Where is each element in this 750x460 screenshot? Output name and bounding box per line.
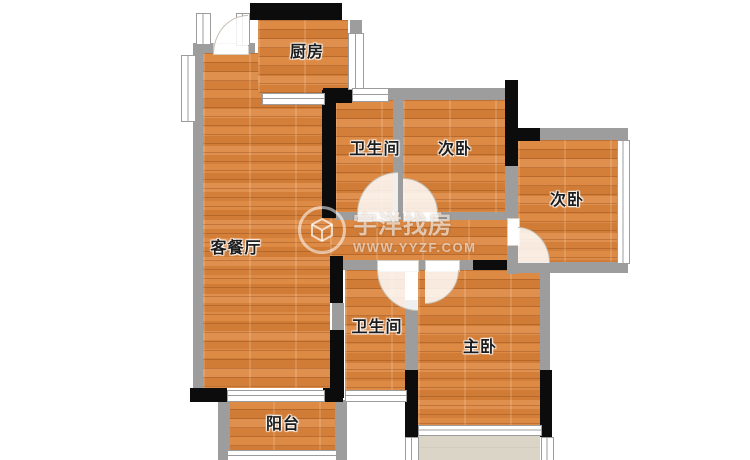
room-label-bathroom-lower: 卫生间	[332, 313, 422, 337]
wall-segment	[507, 244, 518, 274]
wall-segment	[387, 88, 507, 100]
wall-segment	[518, 262, 628, 273]
window	[405, 437, 419, 460]
window	[262, 93, 325, 105]
wall-segment	[335, 212, 357, 220]
wall-segment	[343, 260, 377, 270]
wall-segment	[458, 260, 473, 270]
door-opening	[357, 212, 399, 222]
floorplan-canvas: 厨房 卫生间 次卧 次卧 客餐厅 卫生间 主卧 阳台 宇洋找房 WWW.YYZF…	[0, 0, 750, 460]
floor-south-balcony	[418, 433, 540, 460]
door-arc-entry	[213, 15, 248, 54]
door-opening	[403, 212, 439, 222]
wall-segment	[540, 273, 550, 370]
room-label-bedroom-right: 次卧	[522, 186, 612, 210]
room-label-bathroom-top: 卫生间	[330, 135, 420, 159]
window	[617, 140, 630, 264]
room-label-kitchen: 厨房	[262, 38, 352, 62]
window	[541, 437, 554, 460]
window	[352, 88, 389, 102]
wall-segment	[190, 388, 227, 402]
wall-segment	[437, 212, 507, 220]
window	[345, 390, 407, 402]
floor-hallway	[330, 218, 518, 262]
room-label-living-room: 客餐厅	[191, 234, 281, 258]
wall-segment	[323, 388, 343, 402]
window	[181, 55, 196, 122]
wall-segment	[330, 256, 343, 303]
wall-segment	[538, 128, 628, 140]
window	[227, 450, 337, 460]
wall-segment	[473, 260, 507, 270]
window	[418, 425, 542, 436]
wall-segment	[250, 3, 342, 20]
room-label-balcony: 阳台	[238, 410, 328, 434]
wall-segment	[350, 20, 362, 33]
room-label-master-bedroom: 主卧	[435, 333, 525, 357]
window	[227, 390, 325, 402]
window	[196, 13, 211, 45]
wall-segment	[505, 80, 518, 166]
wall-segment	[405, 370, 418, 437]
wall-segment	[505, 128, 540, 141]
room-label-bedroom-middle: 次卧	[410, 135, 500, 159]
